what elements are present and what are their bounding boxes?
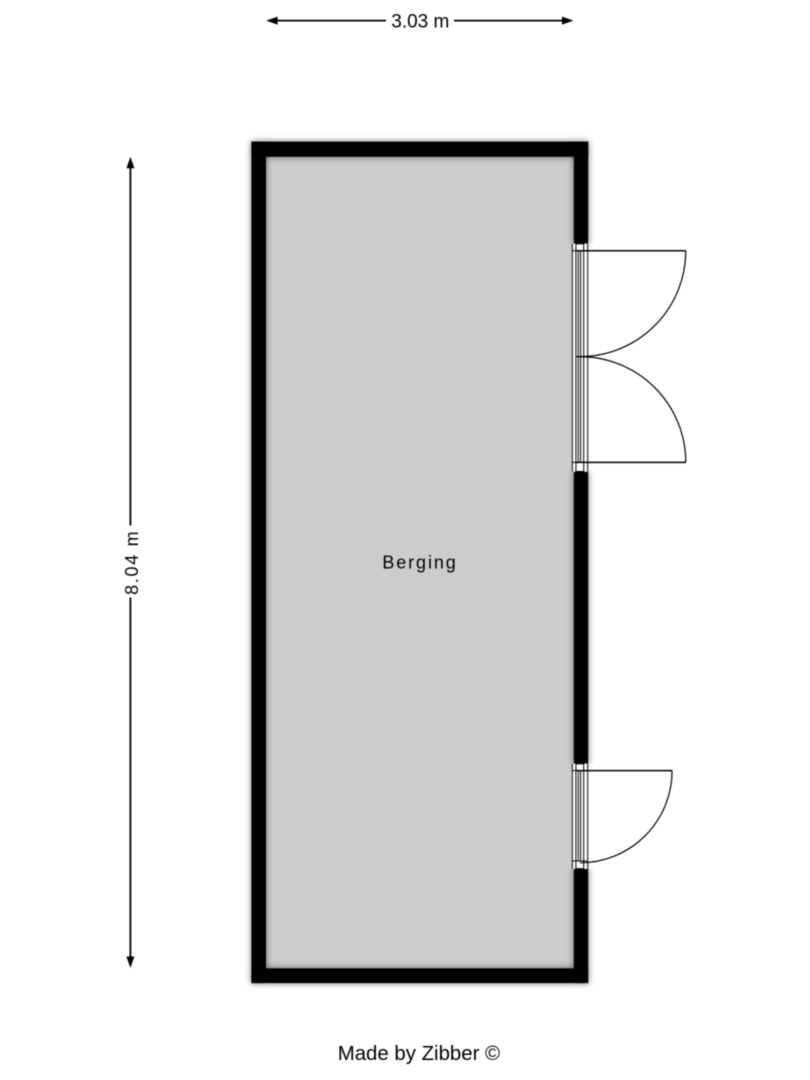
- svg-text:Berging: Berging: [382, 552, 457, 572]
- svg-text:3.03 m: 3.03 m: [391, 12, 449, 33]
- svg-text:8.04 m: 8.04 m: [122, 530, 142, 595]
- svg-text:Made by Zibber ©: Made by Zibber ©: [338, 1043, 500, 1065]
